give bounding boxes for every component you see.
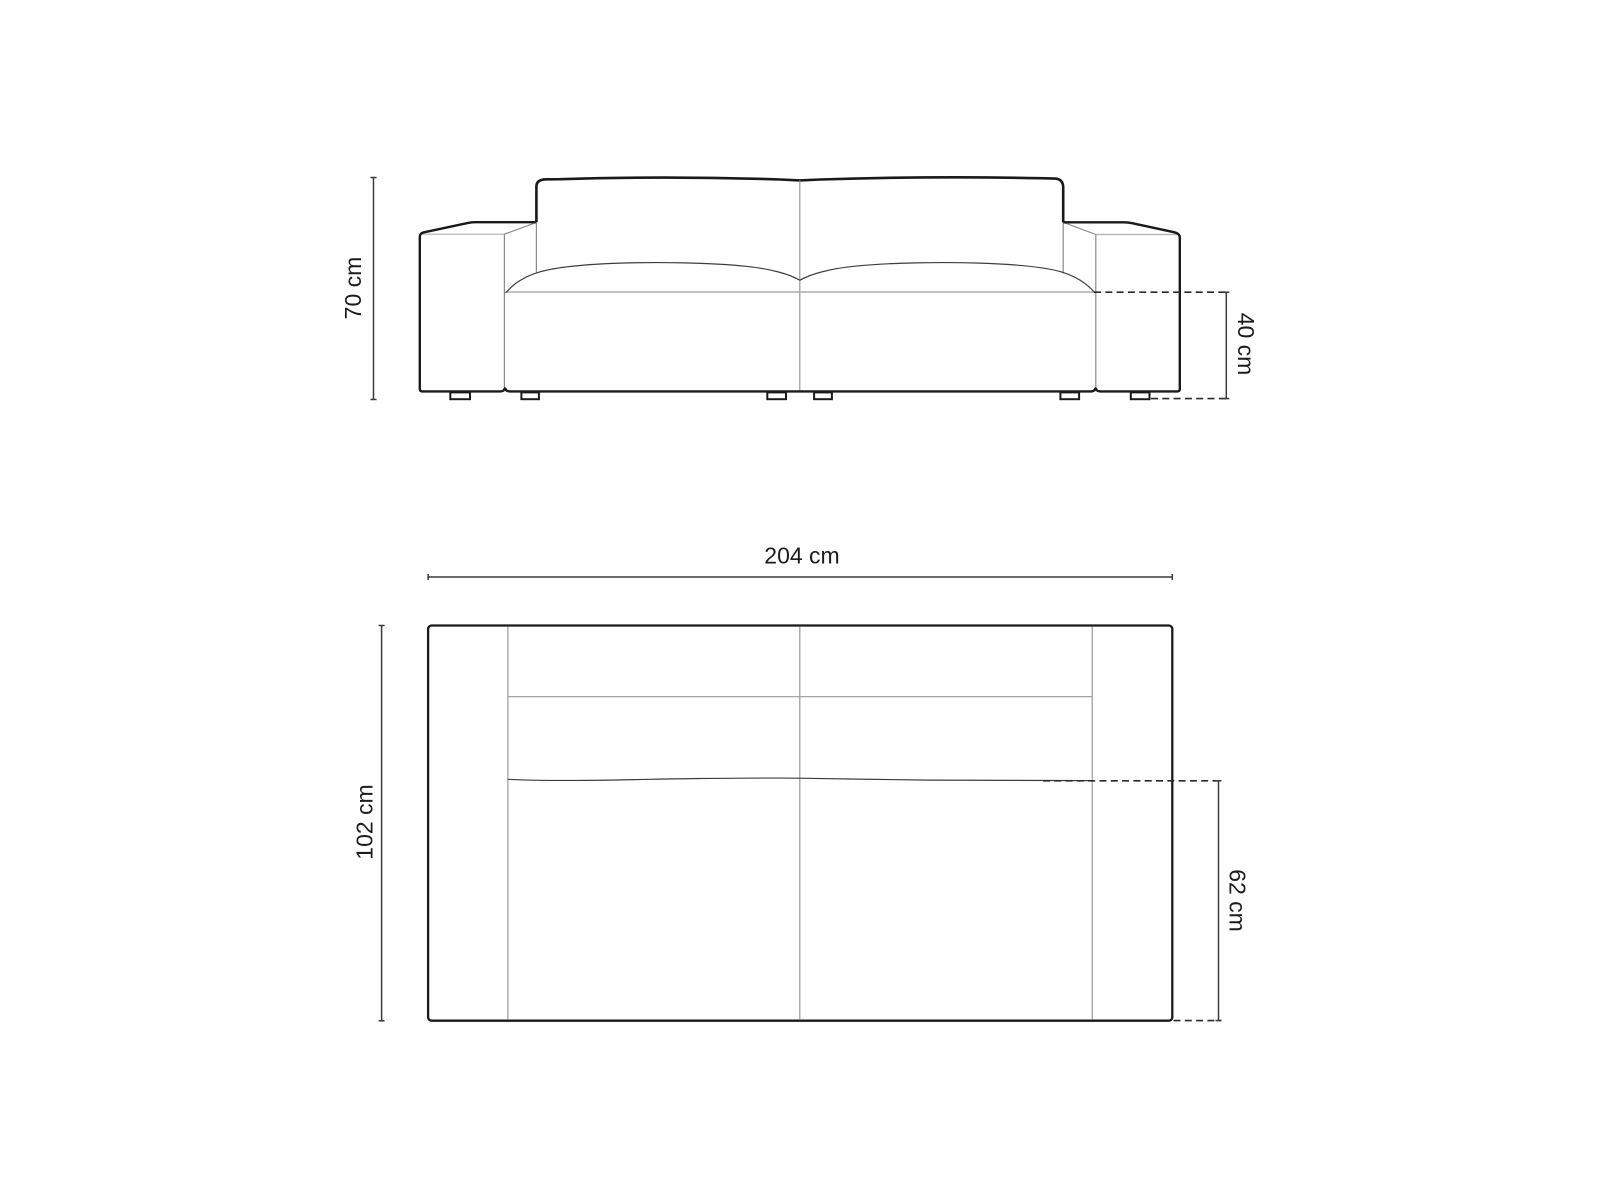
svg-text:102 cm: 102 cm <box>352 784 378 859</box>
svg-text:62 cm: 62 cm <box>1225 869 1251 932</box>
svg-text:40 cm: 40 cm <box>1233 313 1259 376</box>
svg-text:70 cm: 70 cm <box>340 257 366 320</box>
svg-text:204 cm: 204 cm <box>764 543 839 569</box>
